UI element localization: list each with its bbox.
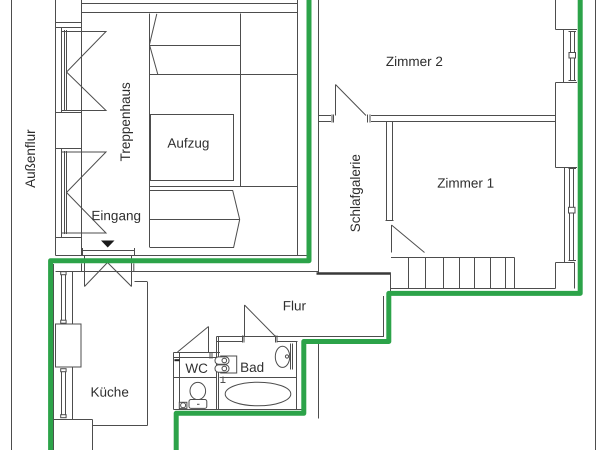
svg-text:Treppenhaus: Treppenhaus — [118, 82, 133, 161]
svg-text:Flur: Flur — [283, 298, 307, 313]
svg-text:Küche: Küche — [91, 385, 129, 400]
svg-text:WC: WC — [185, 361, 208, 376]
svg-text:Zimmer 2: Zimmer 2 — [386, 54, 443, 69]
svg-text:Zimmer 1: Zimmer 1 — [437, 176, 494, 191]
svg-text:Eingang: Eingang — [91, 208, 141, 223]
svg-text:Außenflur: Außenflur — [23, 129, 38, 188]
svg-text:Aufzug: Aufzug — [167, 136, 209, 151]
svg-text:Schlafgalerie: Schlafgalerie — [348, 154, 363, 232]
svg-text:Bad: Bad — [240, 360, 264, 375]
